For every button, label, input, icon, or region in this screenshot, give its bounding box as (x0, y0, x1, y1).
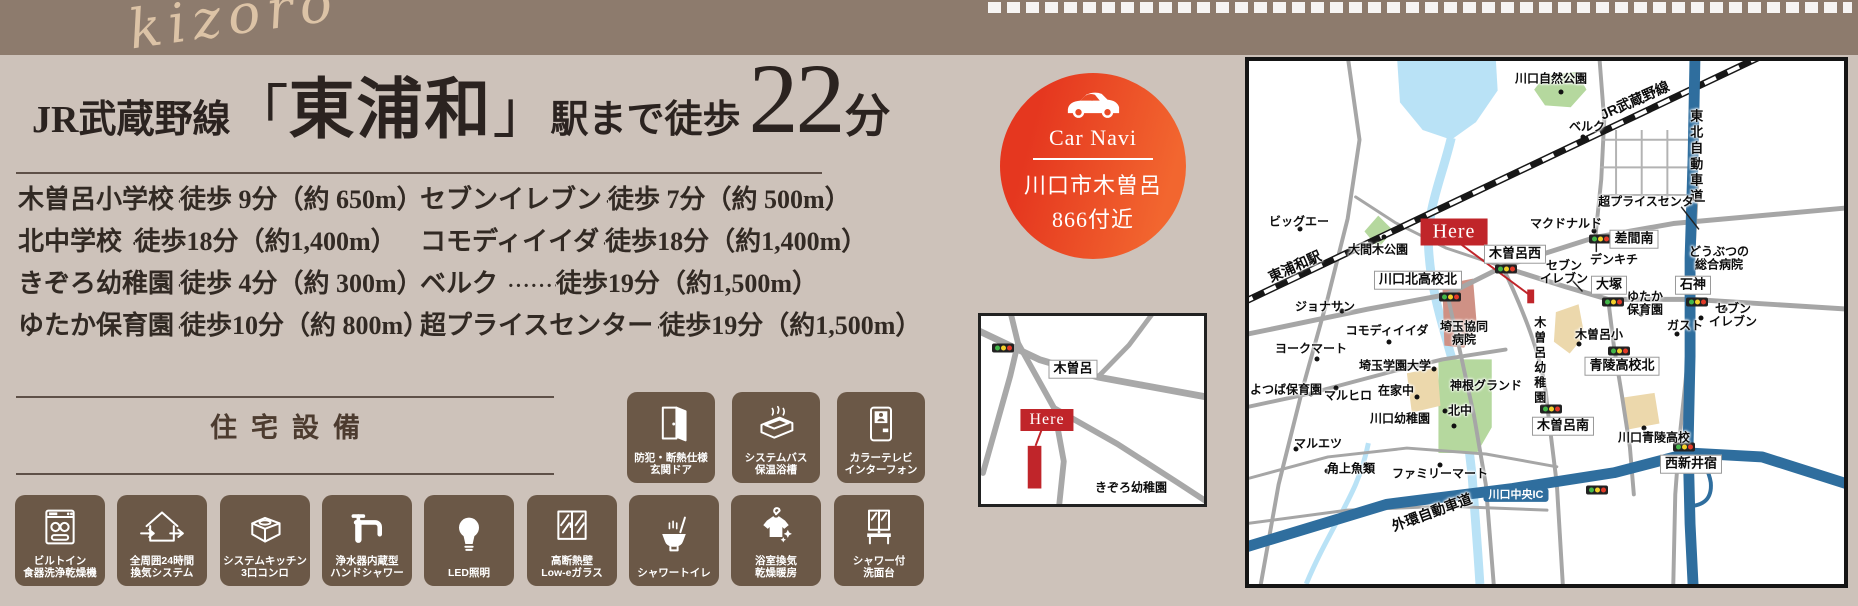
access-list-left: 木曽呂小学校··················徒歩 9分（約 650m）北中学… (18, 179, 390, 347)
headline-minutes-unit: 分 (845, 80, 891, 146)
facility-name: セブンイレブン (420, 179, 602, 216)
traffic-light-icon (1439, 293, 1461, 302)
poi-dot (1315, 357, 1320, 362)
poi-dot (1443, 409, 1448, 414)
equipment-label: シャワートイレ (637, 567, 711, 586)
facility-name: ベルク (420, 263, 505, 300)
walk-time: 徒歩18分（約1,400m） (605, 221, 867, 258)
car-navi-address-line2: 866付近 (1052, 202, 1134, 234)
equipment-tile: システムキッチン 3口コンロ (220, 495, 310, 586)
access-item: コモディイイダ····················徒歩18分（約1,400m… (420, 221, 818, 263)
map-label: 川口幼稚園 (1370, 412, 1430, 425)
map-label: ゆたか 保育園 (1627, 291, 1663, 318)
equipment-section-title: 住宅設備 (16, 406, 554, 445)
map-label: 外環自動車道 (1390, 491, 1474, 534)
equipment-tile: 浄水器内蔵型 ハンドシャワー (322, 495, 412, 586)
access-item: ゆたか保育園······················徒歩10分（約 800m… (18, 305, 390, 347)
leader-dots: ······························ (505, 275, 556, 298)
facility-name: 木曽呂小学校 (18, 179, 174, 216)
traffic-light-icon (1589, 235, 1611, 244)
map-label: JR武蔵野線 (1598, 79, 1672, 123)
divider (16, 172, 822, 174)
poi-dot (1382, 235, 1387, 240)
map-label: 角上魚類 (1327, 462, 1375, 475)
poi-dot (1387, 340, 1392, 345)
vanity-icon (856, 495, 902, 555)
map-label: 差間南 (1609, 230, 1658, 249)
large-map: 川口自然公園JR武蔵野線東北自動車道ベルク超プライスセンタービッグエー大間木公園… (1245, 57, 1848, 588)
window-icon (549, 495, 595, 555)
map-label: 川口自然公園 (1515, 72, 1587, 85)
map-label: ジョナサン (1295, 300, 1355, 313)
map-label: 大間木公園 (1348, 243, 1408, 256)
walk-time: 徒歩 9分（約 650m） (180, 179, 423, 216)
equipment-label: システムキッチン 3口コンロ (223, 555, 307, 586)
entrance-door-icon (648, 392, 694, 452)
map-label: 木曽呂小 (1575, 328, 1623, 341)
car-navi-badge: Car Navi 川口市木曽呂 866付近 (1000, 73, 1186, 259)
headline-bracket-close: 」 (492, 65, 550, 149)
equipment-tile: シャワー付 洗面台 (834, 495, 924, 586)
access-item: セブンイレブン······················徒歩 7分（約 500… (420, 179, 818, 221)
poi-dot (1581, 135, 1586, 140)
map-label: ガスト (1667, 319, 1703, 332)
equipment-tile: 防犯・断熱仕様 玄関ドア (627, 392, 715, 483)
equipment-tile: シャワートイレ (629, 495, 719, 586)
walk-time: 徒歩19分（約1,500m） (659, 305, 921, 342)
access-item: ベルク ······························徒歩19分（… (420, 263, 818, 305)
equipment-tile: 高断熱壁 Low-eガラス (527, 495, 617, 586)
walk-time: 徒歩 4分（約 300m） (180, 263, 423, 300)
car-icon (1064, 88, 1122, 124)
headline-line-name: JR武蔵野線 (32, 88, 230, 143)
facility-name: コモディイイダ (420, 221, 599, 258)
equipment-tile: ビルトイン 食器洗浄乾燥機 (15, 495, 105, 586)
equipment-tile: カラーテレビ インターフォン (837, 392, 925, 483)
poi-dot (1452, 424, 1457, 429)
large-map-labels: 川口自然公園JR武蔵野線東北自動車道ベルク超プライスセンタービッグエー大間木公園… (1249, 61, 1844, 584)
facility-name: ゆたか保育園 (18, 305, 174, 342)
map-label: 埼玉学園大学 (1359, 359, 1431, 372)
access-item: 超プライスセンター··········徒歩19分（約1,500m） (420, 305, 818, 347)
intercom-icon (858, 392, 904, 452)
divider (16, 396, 554, 398)
equipment-label: シャワー付 洗面台 (853, 555, 906, 586)
shower-toilet-icon (651, 495, 697, 567)
headline-minutes: 22 (749, 59, 843, 139)
equipment-label: 防犯・断熱仕様 玄関ドア (634, 452, 708, 483)
access-item: きぞろ幼稚園······················徒歩 4分（約 300m… (18, 263, 390, 305)
map-label: 超プライスセンター (1598, 195, 1706, 208)
flyer-root: kizoro JR武蔵野線 「 東浦和 」 駅まで徒歩 22 分 木曽呂小学校·… (0, 0, 1858, 606)
walk-time: 徒歩18分（約1,400m） (135, 221, 397, 258)
map-label: マクドナルド (1530, 217, 1602, 230)
headline: JR武蔵野線 「 東浦和 」 駅まで徒歩 22 分 (32, 56, 891, 152)
map-label: ファミリーマート (1392, 467, 1488, 480)
dishwasher-icon (37, 495, 83, 555)
divider (16, 473, 554, 475)
faucet-icon (344, 495, 390, 555)
led-bulb-icon (446, 495, 492, 567)
traffic-light-icon (992, 344, 1014, 353)
map-label: 川口中央IC (1484, 488, 1549, 502)
ventilation-icon (139, 495, 185, 555)
equipment-label: カラーテレビ インターフォン (845, 452, 918, 483)
map-label: ビッグエー (1269, 215, 1329, 228)
map-label: ヨークマート (1275, 342, 1347, 355)
access-item: 木曽呂小学校··················徒歩 9分（約 650m） (18, 179, 390, 221)
map-label: 青陵高校北 (1584, 357, 1659, 376)
access-item: 北中学校 ··························徒歩18分（約1,… (18, 221, 390, 263)
map-label: 川口青陵高校 (1618, 431, 1690, 444)
equipment-label: 高断熱壁 Low-eガラス (541, 555, 603, 586)
map-label: 木曽呂幼稚園 (1532, 316, 1545, 406)
equipment-label: 浴室換気 乾燥暖房 (755, 555, 797, 586)
car-navi-divider (1033, 158, 1153, 160)
map-label: 大塚 (1591, 276, 1627, 295)
equipment-tile: 浴室換気 乾燥暖房 (731, 495, 821, 586)
headline-bracket-open: 「 (230, 65, 288, 149)
map-label: 北中 (1448, 404, 1472, 417)
map-label: 木曽呂西 (1484, 245, 1546, 264)
equipment-label: ビルトイン 食器洗浄乾燥機 (23, 555, 97, 586)
bath-dryer-icon (753, 495, 799, 555)
walk-time: 徒歩10分（約 800m） (180, 305, 429, 342)
access-list-right: セブンイレブン······················徒歩 7分（約 500… (420, 179, 818, 347)
headline-station-name: 東浦和 (288, 56, 492, 152)
banner-clipped-text (988, 2, 1852, 13)
map-label: きぞろ幼稚園 (1095, 481, 1167, 494)
equipment-label: 全周囲24時間 換気システム (130, 555, 194, 586)
small-map: 木曽呂Hereきぞろ幼稚園 (978, 313, 1207, 507)
equipment-label: 浄水器内蔵型 ハンドシャワー (330, 555, 404, 586)
walk-time: 徒歩19分（約1,500m） (556, 263, 818, 300)
small-map-labels: 木曽呂Hereきぞろ幼稚園 (981, 316, 1204, 504)
equipment-label: LED照明 (448, 567, 490, 586)
map-label: 木曽呂 (1048, 360, 1097, 379)
equipment-tile: LED照明 (424, 495, 514, 586)
map-label: 埼玉協同 病院 (1440, 321, 1488, 348)
map-label: コモディイイダ (1346, 324, 1429, 337)
traffic-light-icon (1495, 265, 1517, 274)
equipment-tile: 全周囲24時間 換気システム (117, 495, 207, 586)
traffic-light-icon (1586, 486, 1608, 495)
car-navi-address-line1: 川口市木曽呂 (1024, 168, 1162, 200)
map-label: 木曽呂南 (1532, 417, 1594, 436)
equipment-label: システムバス 保温浴槽 (745, 452, 808, 483)
here-marker-label: Here (1020, 409, 1073, 431)
map-label: デンキチ (1590, 253, 1638, 266)
poi-dot (1432, 367, 1437, 372)
facility-name: 超プライスセンター (420, 305, 653, 342)
map-label: セブン イレブン (1540, 260, 1588, 287)
map-label: 東北自動車道 (1688, 109, 1703, 205)
traffic-light-icon (1686, 298, 1708, 307)
map-label: マルヒロ (1324, 389, 1372, 402)
map-label: マルエツ (1294, 437, 1342, 450)
poi-dot (1559, 90, 1564, 95)
map-label: 在家中 (1378, 384, 1414, 397)
traffic-light-icon (1602, 298, 1624, 307)
car-navi-title: Car Navi (1049, 125, 1137, 151)
map-label: 石神 (1675, 276, 1711, 295)
map-label: ベルク (1569, 120, 1605, 133)
facility-name: きぞろ幼稚園 (18, 263, 174, 300)
traffic-light-icon (1608, 347, 1630, 356)
here-marker-label: Here (1421, 219, 1488, 246)
poi-dot (1577, 342, 1582, 347)
map-label: どうぶつの 総合病院 (1689, 246, 1749, 273)
map-label: 東浦和駅 (1266, 248, 1324, 285)
stove-icon (242, 495, 288, 555)
map-label: 神根グランド (1450, 379, 1522, 392)
map-label: よつば保育園 (1250, 383, 1322, 396)
map-label: 川口北高校北 (1374, 271, 1462, 290)
map-label: セブン イレブン (1709, 303, 1757, 330)
facility-name: 北中学校 (18, 221, 129, 258)
walk-time: 徒歩 7分（約 500m） (608, 179, 851, 216)
map-label: 西新井宿 (1660, 455, 1722, 474)
bathtub-icon (753, 392, 799, 452)
equipment-tile: システムバス 保温浴槽 (732, 392, 820, 483)
headline-suffix: 駅まで徒歩 (550, 88, 740, 143)
poi-dot (1415, 395, 1420, 400)
